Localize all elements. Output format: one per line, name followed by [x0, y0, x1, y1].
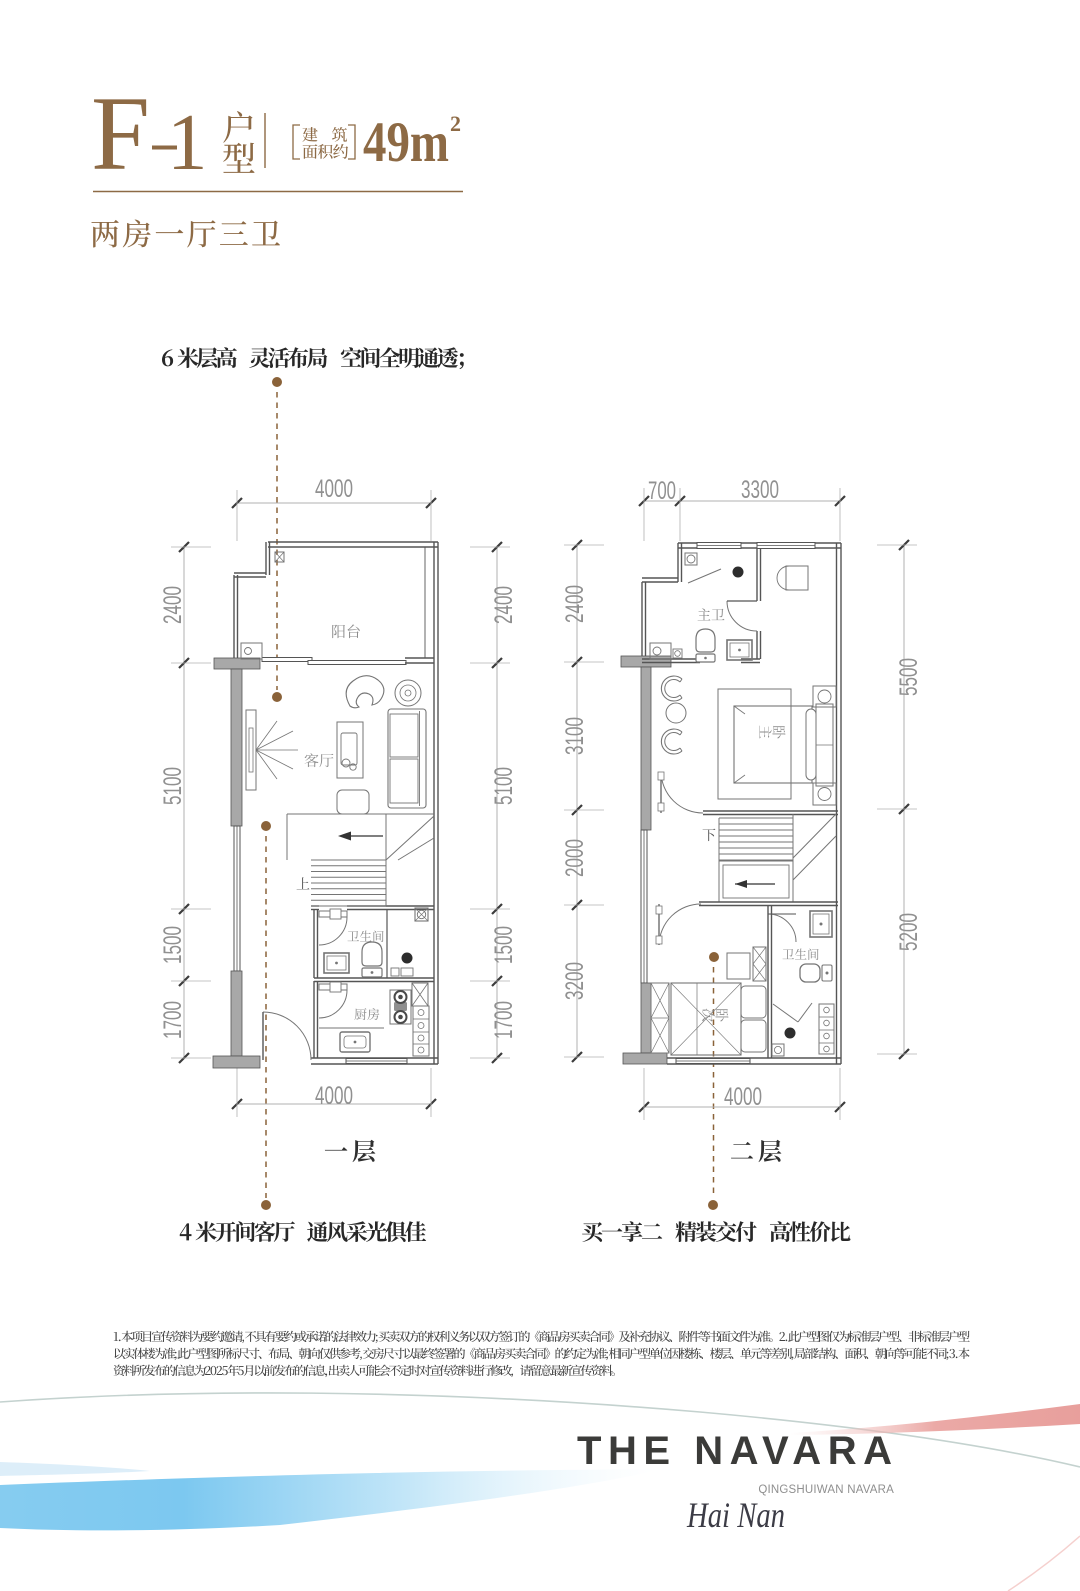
svg-text:5100: 5100: [490, 767, 518, 805]
svg-text:2400: 2400: [159, 586, 187, 624]
svg-text:2000: 2000: [561, 839, 589, 877]
svg-text:4000: 4000: [724, 1083, 762, 1111]
svg-text:5500: 5500: [895, 658, 923, 696]
svg-text:2: 2: [450, 111, 461, 136]
svg-text:2400: 2400: [561, 585, 589, 623]
svg-text:49m: 49m: [363, 111, 449, 174]
svg-text:4000: 4000: [315, 1082, 353, 1110]
svg-text:2400: 2400: [490, 586, 518, 624]
svg-text:700: 700: [648, 477, 676, 505]
svg-text:4000: 4000: [315, 475, 353, 503]
svg-text:5200: 5200: [895, 913, 923, 951]
svg-text:5100: 5100: [159, 767, 187, 805]
svg-text:3300: 3300: [741, 476, 779, 504]
svg-text:3200: 3200: [561, 962, 589, 1000]
svg-text:1: 1: [167, 97, 208, 187]
svg-text:1700: 1700: [159, 1001, 187, 1039]
svg-text:1500: 1500: [159, 926, 187, 964]
svg-text:Hai Nan: Hai Nan: [686, 1495, 785, 1535]
svg-text:1500: 1500: [490, 926, 518, 964]
svg-text:THE NAVARA: THE NAVARA: [577, 1429, 892, 1473]
svg-text:F: F: [91, 75, 150, 192]
svg-text:3100: 3100: [561, 717, 589, 755]
svg-text:1700: 1700: [490, 1001, 518, 1039]
